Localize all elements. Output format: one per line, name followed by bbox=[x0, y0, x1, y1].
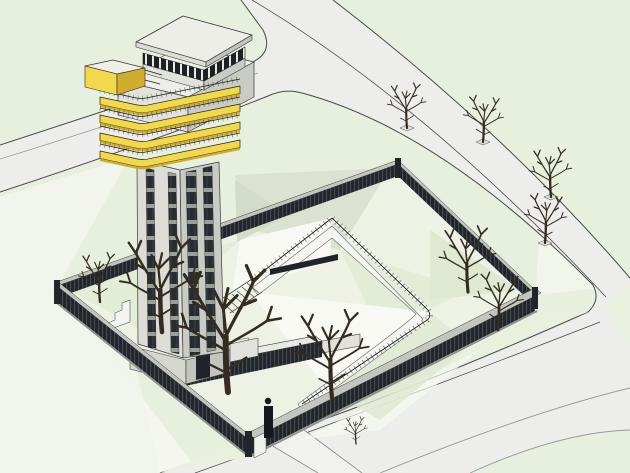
architectural-model-scene bbox=[0, 0, 630, 473]
tower-shaft bbox=[137, 160, 224, 358]
render-viewport bbox=[0, 0, 630, 473]
